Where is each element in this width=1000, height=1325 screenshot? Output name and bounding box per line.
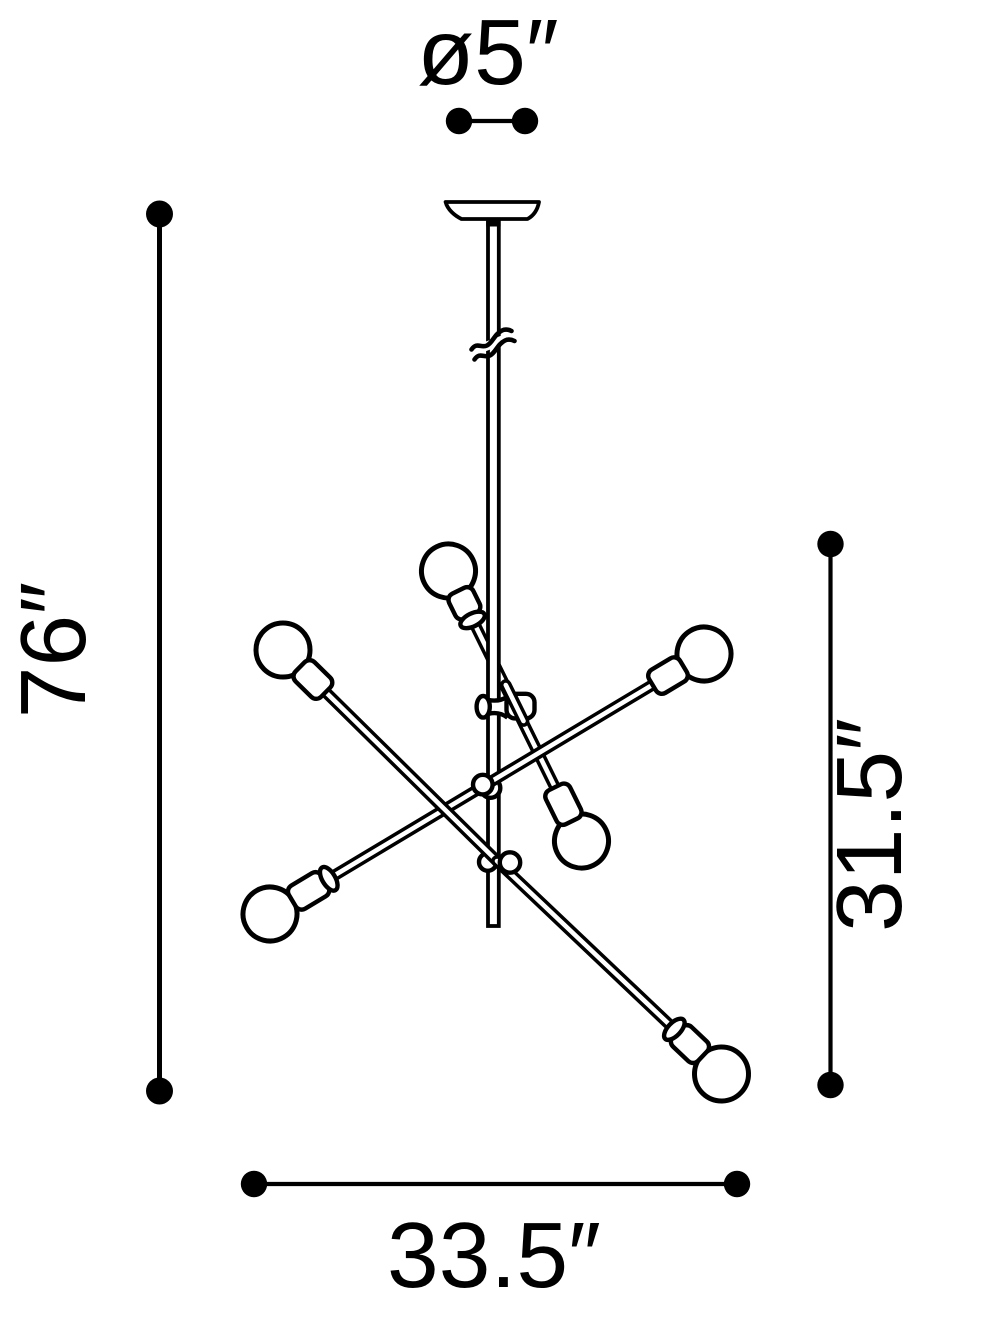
svg-text:33.5″: 33.5″ bbox=[387, 1203, 601, 1307]
svg-text:31.5″: 31.5″ bbox=[817, 718, 921, 932]
svg-text:ø5″: ø5″ bbox=[417, 0, 558, 104]
svg-text:76″: 76″ bbox=[1, 582, 105, 718]
